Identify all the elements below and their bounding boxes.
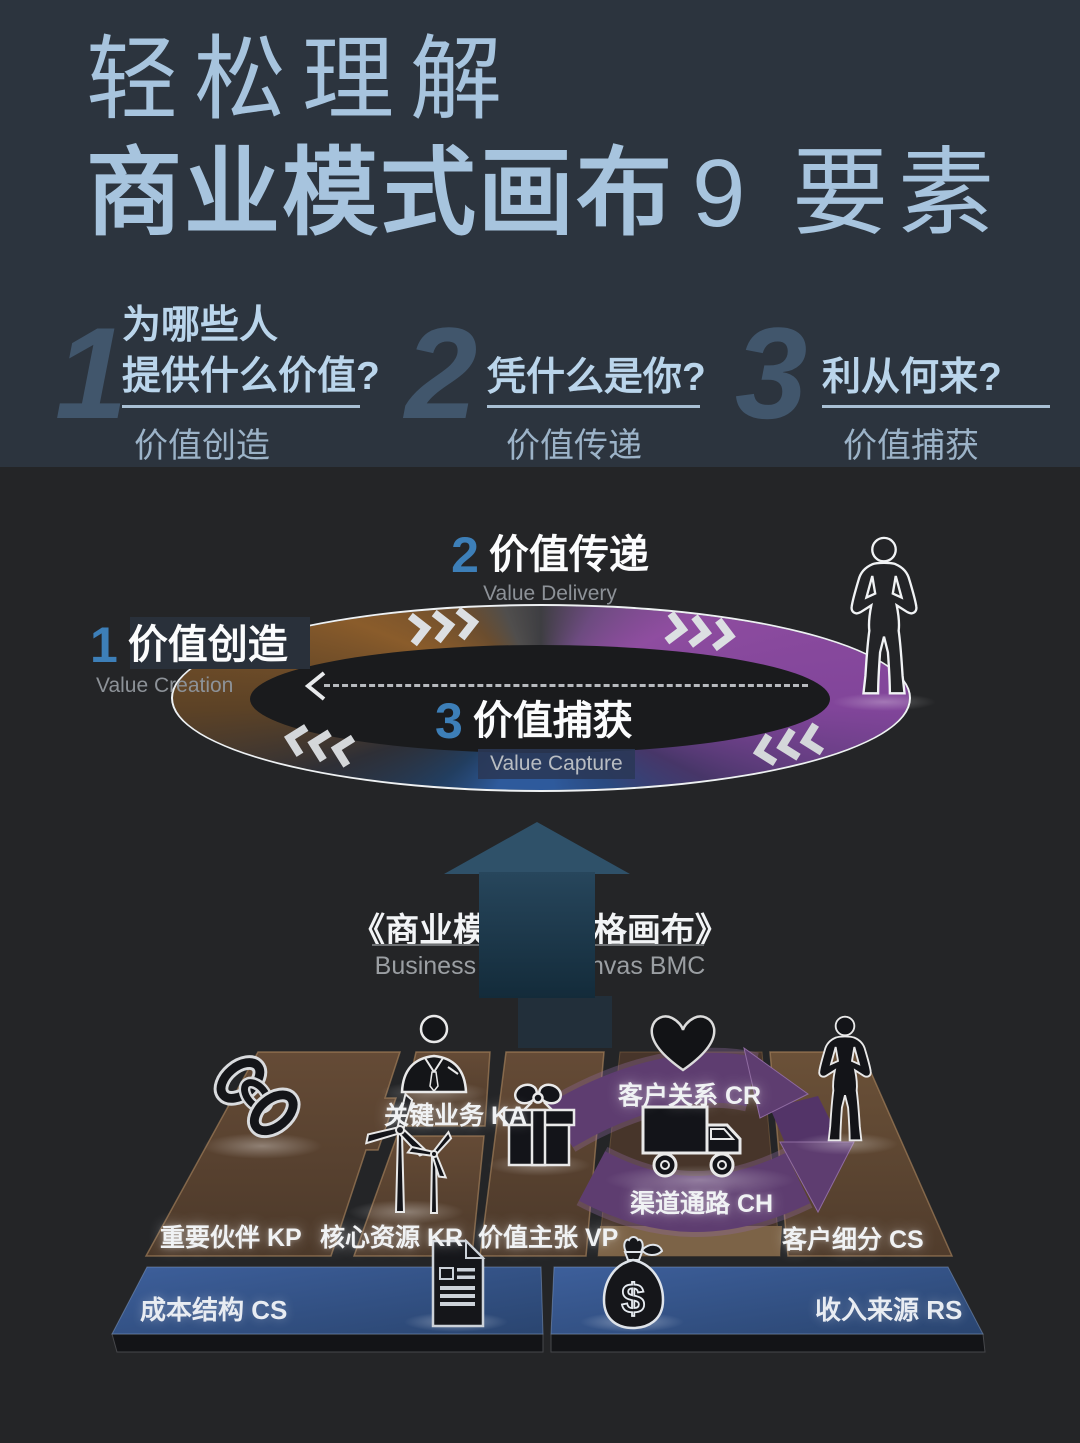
truck-icon <box>638 1102 753 1192</box>
cost-bar-base <box>112 1334 543 1352</box>
label-revenue-streams: 收入来源 RS <box>815 1290 962 1327</box>
label-value-proposition: 价值主张 VP <box>478 1218 602 1254</box>
label-key-partners: 重要伙伴 KP <box>160 1218 300 1254</box>
svg-text:$: $ <box>621 1275 644 1322</box>
up-arrow-shaft <box>479 872 595 998</box>
glow-standing-man <box>832 693 936 711</box>
chain-icon <box>208 1054 316 1157</box>
label-key-activities: 关键业务 KA <box>384 1096 514 1132</box>
up-arrow-shaft-faint <box>518 996 612 1048</box>
infographic-root: 轻松理解 商业模式画布9 要素 1 为哪些人 提供什么价值? 价值创造 2 凭什… <box>0 0 1080 1443</box>
up-arrow-head <box>444 822 630 874</box>
businessman-icon <box>394 1014 474 1099</box>
label-customer-relations: 客户关系 CR <box>618 1076 754 1112</box>
person-icon <box>810 1014 880 1155</box>
label-customer-segments: 客户细分 CS <box>782 1220 916 1256</box>
label-cost-structure: 成本结构 CS <box>140 1290 287 1327</box>
label-key-resources: 核心资源 KR <box>320 1218 460 1254</box>
heart-icon <box>648 1012 718 1079</box>
label-channels: 渠道通路 CH <box>630 1184 766 1220</box>
